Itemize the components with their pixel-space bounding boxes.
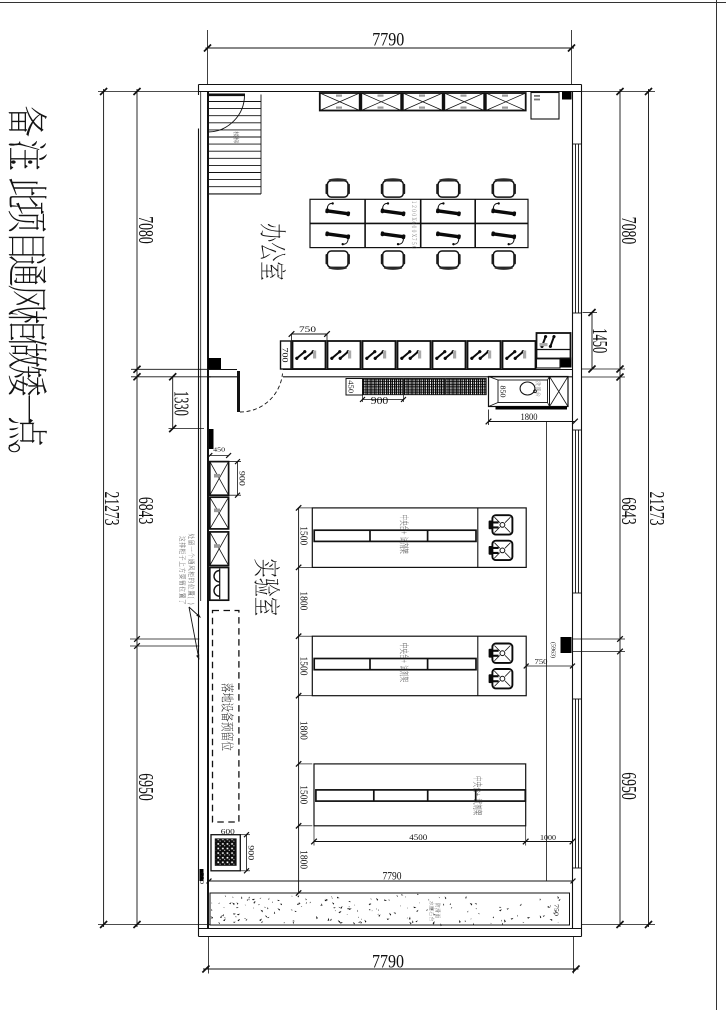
svg-text:1500: 1500	[297, 526, 309, 545]
svg-text:21273: 21273	[100, 492, 124, 526]
svg-text:1500: 1500	[297, 657, 309, 676]
svg-text:1450: 1450	[588, 328, 612, 353]
svg-text:1800: 1800	[297, 850, 309, 869]
svg-text:(5963): (5963)	[550, 642, 557, 658]
svg-text:450: 450	[346, 380, 355, 393]
svg-text:7790: 7790	[383, 869, 402, 883]
svg-text:700: 700	[281, 348, 290, 363]
svg-text:1800: 1800	[297, 591, 309, 610]
svg-text:6950: 6950	[617, 772, 641, 800]
svg-text:6950: 6950	[134, 773, 158, 801]
svg-text:900: 900	[238, 471, 247, 486]
svg-text:750: 750	[299, 324, 317, 334]
svg-text:1800: 1800	[297, 721, 309, 740]
svg-text:4500: 4500	[409, 833, 427, 842]
svg-text:450: 450	[213, 448, 225, 454]
svg-text:1800: 1800	[521, 412, 538, 422]
svg-text:600: 600	[221, 827, 235, 836]
svg-text:7080: 7080	[134, 216, 158, 244]
svg-text:750: 750	[553, 904, 560, 916]
svg-text:600: 600	[198, 872, 205, 884]
svg-text:1000: 1000	[540, 833, 556, 842]
svg-text:900: 900	[371, 396, 389, 407]
svg-text:21273: 21273	[645, 492, 669, 526]
svg-text:7790: 7790	[372, 30, 404, 51]
svg-text:750: 750	[535, 657, 548, 666]
svg-text:900: 900	[247, 845, 256, 860]
svg-text:6843: 6843	[134, 497, 158, 524]
svg-text:1330: 1330	[169, 391, 193, 416]
svg-text:7080: 7080	[617, 217, 641, 245]
svg-text:1500: 1500	[297, 785, 309, 804]
svg-text:850: 850	[499, 386, 507, 399]
svg-text:6843: 6843	[617, 497, 641, 525]
svg-text:7790: 7790	[372, 952, 404, 973]
